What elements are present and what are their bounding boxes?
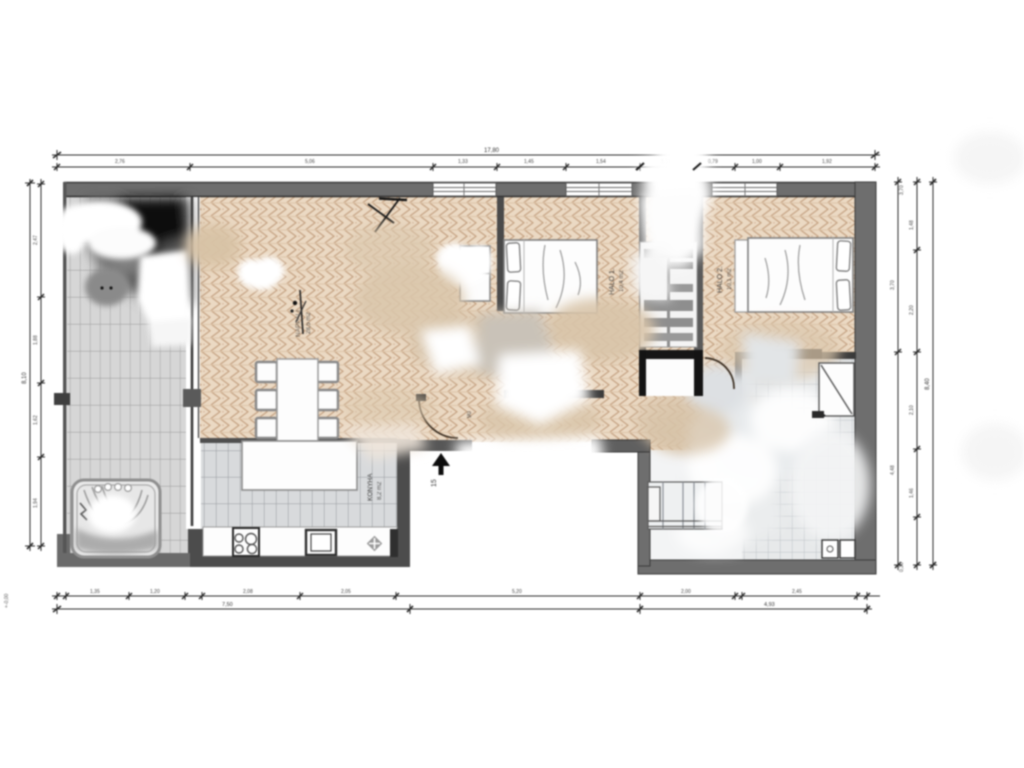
svg-text:8,10: 8,10 [22, 372, 28, 384]
svg-text:4,48: 4,48 [890, 465, 896, 475]
svg-text:2,20: 2,20 [909, 305, 915, 315]
svg-text:15: 15 [431, 479, 438, 487]
svg-text:1,92: 1,92 [822, 159, 832, 165]
svg-text:2,47: 2,47 [33, 235, 39, 245]
svg-text:NAPPALI: NAPPALI [295, 310, 302, 337]
svg-text:1,54: 1,54 [596, 159, 606, 165]
svg-text:1,48: 1,48 [909, 220, 915, 230]
svg-text:28,5 m2: 28,5 m2 [306, 312, 312, 334]
svg-text:8,2 m2: 8,2 m2 [377, 481, 383, 500]
svg-text:1,88: 1,88 [33, 335, 39, 345]
svg-text:2,45: 2,45 [792, 589, 802, 595]
svg-text:1,45: 1,45 [524, 159, 534, 165]
svg-text:2,00: 2,00 [681, 589, 691, 595]
svg-text:2,10: 2,10 [909, 405, 915, 415]
svg-text:1,00: 1,00 [752, 159, 762, 165]
svg-text:3,70: 3,70 [890, 280, 896, 290]
svg-text:90: 90 [467, 411, 473, 418]
svg-text:1,33: 1,33 [458, 159, 468, 165]
svg-text:10,4 m2: 10,4 m2 [619, 270, 625, 292]
svg-text:5,20: 5,20 [512, 589, 522, 595]
svg-text:+-0,00: +-0,00 [4, 593, 10, 608]
svg-text:1,46: 1,46 [909, 488, 915, 498]
svg-text:2,08: 2,08 [243, 589, 253, 595]
svg-text:8,40: 8,40 [925, 378, 931, 390]
svg-text:4,93: 4,93 [764, 602, 775, 608]
svg-text:5,06: 5,06 [305, 159, 315, 165]
svg-text:1,20: 1,20 [150, 589, 160, 595]
svg-text:7,50: 7,50 [222, 602, 233, 608]
svg-text:2,05: 2,05 [341, 589, 351, 595]
svg-text:2,76: 2,76 [115, 159, 125, 165]
svg-text:1,62: 1,62 [33, 415, 39, 425]
svg-text:17,80: 17,80 [484, 148, 500, 154]
svg-text:0,30: 0,30 [899, 562, 905, 572]
svg-text:KONYHA: KONYHA [367, 473, 374, 501]
svg-text:HALO 1.: HALO 1. [609, 268, 616, 295]
svg-text:1,94: 1,94 [33, 498, 39, 508]
svg-text:1,35: 1,35 [90, 589, 100, 595]
svg-text:3,70: 3,70 [899, 185, 905, 195]
svg-text:10,1 m2: 10,1 m2 [727, 268, 733, 290]
svg-text:HALO 2.: HALO 2. [717, 266, 724, 293]
